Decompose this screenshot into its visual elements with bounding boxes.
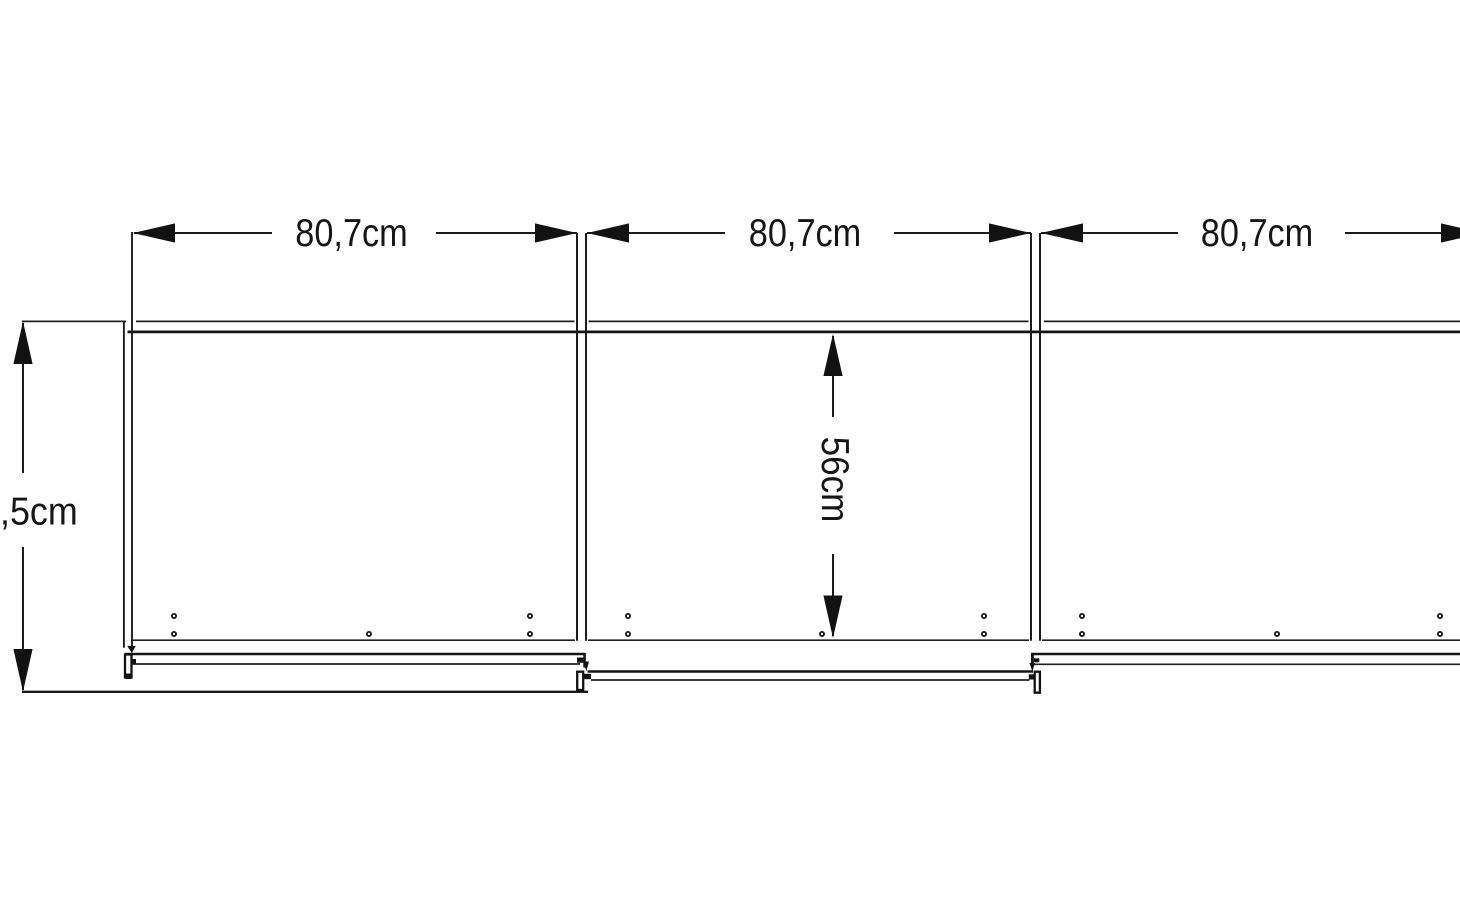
svg-text:80,7cm: 80,7cm: [295, 211, 408, 255]
svg-text:,5cm: ,5cm: [0, 489, 78, 533]
svg-text:80,7cm: 80,7cm: [749, 211, 862, 255]
svg-text:56cm: 56cm: [814, 437, 858, 523]
svg-text:80,7cm: 80,7cm: [1201, 211, 1314, 255]
